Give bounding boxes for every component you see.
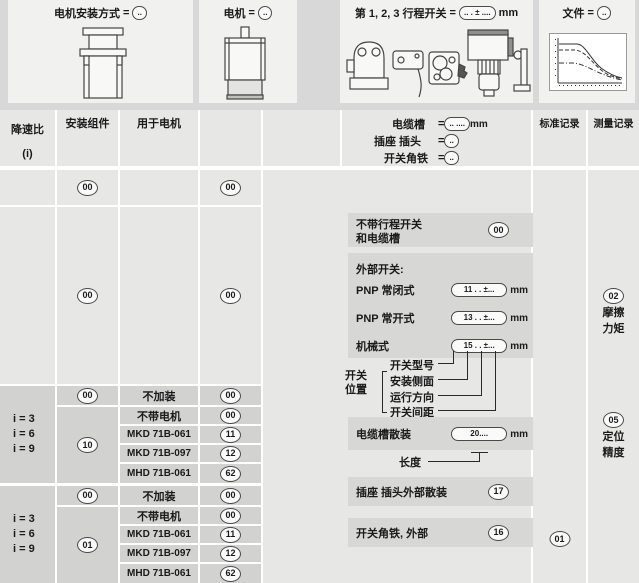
plug-bulk-label: 插座 插头外部散装 xyxy=(356,484,447,500)
code-badge: 00 xyxy=(77,288,98,304)
motor-icon xyxy=(217,26,273,100)
motor-mount-label: 电机安装方式 xyxy=(54,5,120,21)
angle-external-label: 开关角铁, 外部 xyxy=(356,525,428,541)
measure-item-friction: 02 摩擦 力矩 xyxy=(588,288,639,336)
panel-file: 文件 = .. xyxy=(539,0,635,103)
code-badge: 00 xyxy=(220,408,241,424)
code-badge: 01 xyxy=(77,537,98,553)
code-badge: 17 xyxy=(488,484,509,500)
table-row: 00 xyxy=(200,507,261,524)
header-mounting: 安装组件 xyxy=(57,110,118,166)
sensor-face-icon xyxy=(428,50,468,96)
callout-run-direction: 运行方向 xyxy=(390,389,434,405)
panel-motor: 电机 = .. xyxy=(199,0,297,103)
header-ratio-line1: 降速比 xyxy=(11,121,44,137)
code-badge: 62 xyxy=(220,566,241,582)
motor-label: 电机 xyxy=(224,5,246,21)
pnp-no-code-oval: 13 . . ±... xyxy=(451,311,507,325)
code-badge: 00 xyxy=(77,180,98,196)
option-plug-bulk: 插座 插头外部散装 17 xyxy=(348,477,533,506)
pnp-nc-row: PNP 常闭式 11 . . ±... mm xyxy=(356,282,528,298)
table-row: 11 xyxy=(200,426,261,443)
switch-angle-label: 开关角铁 xyxy=(342,150,438,166)
equals-sign: = xyxy=(123,7,129,19)
table-row: 不加装 xyxy=(120,486,198,505)
table-row: MKD 71B-061 xyxy=(120,426,198,443)
ratio-value: i = 3 xyxy=(13,513,35,526)
pnp-nc-unit: mm xyxy=(510,285,528,296)
motorcode-cell-rowA: 00 xyxy=(200,170,261,205)
motor-option: MHD 71B-061 xyxy=(127,568,191,579)
header-spacer-col xyxy=(263,110,340,166)
pnp-nc-label: PNP 常闭式 xyxy=(356,282,451,298)
measure-label-line: 精度 xyxy=(603,446,625,460)
motor-option: MKD 71B-061 xyxy=(127,529,191,540)
ratio-cell-section2: i = 3 i = 6 i = 9 xyxy=(0,486,55,583)
ratio-cell-rowB xyxy=(0,207,55,384)
motor-option: MKD 71B-061 xyxy=(127,429,191,440)
motor-option: MHD 71B-061 xyxy=(127,468,191,479)
table-row: 00 xyxy=(200,486,261,505)
header-accessories: 电缆槽 = .. .... mm 插座 插头 = .. 开关角铁 = .. xyxy=(342,110,531,166)
table-row: 00 xyxy=(200,407,261,424)
table-row: 00 xyxy=(200,386,261,405)
panel-travel-switches: 第 1, 2, 3 行程开关 = .. . ± .... mm xyxy=(340,0,533,103)
micro-switch-icon xyxy=(392,48,426,100)
ratio-value: i = 3 xyxy=(13,413,35,426)
file-label: 文件 xyxy=(563,5,585,21)
header-measure-record-label: 测量记录 xyxy=(594,115,634,130)
ratio-value: i = 6 xyxy=(13,528,35,541)
table-row: MHD 71B-061 xyxy=(120,564,198,583)
pnp-no-label: PNP 常开式 xyxy=(356,310,451,326)
header-mounting-label: 安装组件 xyxy=(66,115,110,131)
code-badge: 11 xyxy=(220,527,241,543)
header-plug-row: 插座 插头 = .. xyxy=(342,133,531,149)
cable-duct-unit: mm xyxy=(470,119,488,130)
option-no-switch: 不带行程开关 和电缆槽 00 xyxy=(348,213,533,247)
table-row: 62 xyxy=(200,564,261,583)
code-badge: 00 xyxy=(220,288,241,304)
code-badge: 12 xyxy=(220,546,241,562)
equals-sign: = xyxy=(450,7,456,19)
motor-option: MKD 71B-097 xyxy=(127,548,191,559)
header-ratio-line2: (i) xyxy=(22,148,32,160)
code-badge: 16 xyxy=(488,525,509,541)
table-row: 不带电机 xyxy=(120,507,198,524)
motor-option: 不带电机 xyxy=(137,508,181,524)
motor-option: 不带电机 xyxy=(137,408,181,424)
motor-mount-code-oval: .. xyxy=(132,6,146,20)
mounting-none-cell-section2: 00 xyxy=(57,486,118,505)
equals-sign: = xyxy=(249,7,255,19)
motor-code-oval: .. xyxy=(258,6,272,20)
table-row: MHD 71B-061 xyxy=(120,464,198,483)
motorcode-cell-rowB: 00 xyxy=(200,207,261,384)
cable-bulk-code-oval: 20.... xyxy=(451,427,507,441)
table-row: 11 xyxy=(200,526,261,543)
table-row: MKD 71B-097 xyxy=(120,545,198,562)
table-row: 不带电机 xyxy=(120,407,198,424)
external-switch-title: 外部开关: xyxy=(356,261,404,277)
ratio-cell-rowA xyxy=(0,170,55,205)
motor-label-row: 电机 = .. xyxy=(199,5,297,21)
angle-bracket-icon xyxy=(512,42,532,98)
motor-mount-icon xyxy=(72,26,134,100)
code-badge: 02 xyxy=(603,288,624,304)
ratio-value: i = 6 xyxy=(13,428,35,441)
ratio-cell-section1: i = 3 i = 6 i = 9 xyxy=(0,386,55,483)
motor-option: MKD 71B-097 xyxy=(127,448,191,459)
table-row: 不加装 xyxy=(120,386,198,405)
measure-label-line: 定位 xyxy=(603,430,625,444)
mounting-cell-section2: 01 xyxy=(57,507,118,583)
roller-limit-switch-icon xyxy=(346,36,392,98)
header-for-motor: 用于电机 xyxy=(120,110,198,166)
header-measure-record: 测量记录 xyxy=(588,110,639,166)
option-external-switches: 外部开关: PNP 常闭式 11 . . ±... mm PNP 常开式 13 … xyxy=(348,253,533,358)
cable-duct-code-oval: .. .... xyxy=(444,117,470,131)
plug-socket-label: 插座 插头 xyxy=(342,133,438,149)
code-badge: 11 xyxy=(220,427,241,443)
header-angle-row: 开关角铁 = .. xyxy=(342,150,531,166)
measure-record-col: 02 摩擦 力矩 05 定位 精度 xyxy=(588,170,639,583)
option-angle-external: 开关角铁, 外部 16 xyxy=(348,518,533,547)
cable-duct-label: 电缆槽 xyxy=(342,116,438,132)
code-badge: 62 xyxy=(220,466,241,482)
cable-bulk-label: 电缆槽散装 xyxy=(356,426,451,442)
header-standard-record-label: 标准记录 xyxy=(540,115,580,130)
mechanical-code-oval: 15 . . ±... xyxy=(451,339,507,353)
code-badge: 00 xyxy=(77,488,98,504)
code-badge: 00 xyxy=(220,488,241,504)
motor-mount-label-row: 电机安装方式 = .. xyxy=(8,5,193,21)
switch-position-label: 开关 位置 xyxy=(345,369,367,397)
measure-item-positioning: 05 定位 精度 xyxy=(588,412,639,460)
code-badge: 10 xyxy=(77,437,98,453)
table-row: 62 xyxy=(200,464,261,483)
file-label-row: 文件 = .. xyxy=(539,5,635,21)
mounting-cell-rowB: 00 xyxy=(57,207,118,384)
cable-bulk-row: 电缆槽散装 20.... mm xyxy=(356,426,528,442)
code-badge: 05 xyxy=(603,412,624,428)
mounting-cell-rowA: 00 xyxy=(57,170,118,205)
standard-record-col: 01 xyxy=(533,170,586,583)
code-badge: 00 xyxy=(220,508,241,524)
ratio-value: i = 9 xyxy=(13,443,35,456)
file-code-oval: .. xyxy=(597,6,611,20)
switch-position-line2: 位置 xyxy=(345,383,367,397)
ratio-value: i = 9 xyxy=(13,543,35,556)
table-row: MKD 71B-097 xyxy=(120,445,198,462)
document-curves-icon xyxy=(549,33,627,91)
mechanical-label: 机械式 xyxy=(356,338,451,354)
equals-sign: = xyxy=(588,7,594,19)
travel-switch-label: 第 1, 2, 3 行程开关 xyxy=(355,5,447,21)
table-row: 12 xyxy=(200,445,261,462)
code-badge: 01 xyxy=(549,531,570,547)
motor-cell-rowB xyxy=(120,207,198,384)
motor-cell-rowA xyxy=(120,170,198,205)
mounting-cell-section1: 10 xyxy=(57,407,118,483)
header-cable-row: 电缆槽 = .. .... mm xyxy=(342,116,531,132)
table-row: 12 xyxy=(200,545,261,562)
pnp-nc-code-oval: 11 . . ±... xyxy=(451,283,507,297)
callout-switch-type: 开关型号 xyxy=(390,357,434,373)
travel-switch-unit: mm xyxy=(499,7,519,19)
measure-label-line: 力矩 xyxy=(603,322,625,336)
plug-socket-code-oval: .. xyxy=(444,134,458,148)
header-code-col xyxy=(200,110,261,166)
callout-length: 长度 xyxy=(399,454,421,470)
switch-angle-code-oval: .. xyxy=(444,151,458,165)
switch-plug-unit-icon xyxy=(466,28,514,102)
mechanical-unit: mm xyxy=(510,341,528,352)
callout-mounting-side: 安装侧面 xyxy=(390,373,434,389)
motor-option: 不加装 xyxy=(143,488,176,504)
mounting-none-cell-section1: 00 xyxy=(57,386,118,405)
travel-switch-label-row: 第 1, 2, 3 行程开关 = .. . ± .... mm xyxy=(340,5,533,21)
code-badge: 00 xyxy=(488,222,509,238)
travel-switch-code-oval: .. . ± .... xyxy=(459,6,496,20)
pnp-no-unit: mm xyxy=(510,313,528,324)
mechanical-row: 机械式 15 . . ±... mm xyxy=(356,338,528,354)
header-ratio: 降速比 (i) xyxy=(0,110,55,166)
no-switch-line2: 和电缆槽 xyxy=(356,230,400,246)
option-cable-duct-bulk: 电缆槽散装 20.... mm xyxy=(348,417,533,450)
switch-position-line1: 开关 xyxy=(345,369,367,383)
measure-label-line: 摩擦 xyxy=(603,306,625,320)
header-standard-record: 标准记录 xyxy=(533,110,586,166)
header-for-motor-label: 用于电机 xyxy=(137,115,181,131)
code-badge: 00 xyxy=(220,388,241,404)
code-badge: 00 xyxy=(77,388,98,404)
code-badge: 00 xyxy=(220,180,241,196)
motor-option: 不加装 xyxy=(143,388,176,404)
ordering-schema-diagram: 电机安装方式 = .. 电机 = .. xyxy=(0,0,639,583)
cable-bulk-unit: mm xyxy=(510,429,528,440)
code-badge: 12 xyxy=(220,446,241,462)
pnp-no-row: PNP 常开式 13 . . ±... mm xyxy=(356,310,528,326)
panel-motor-mount: 电机安装方式 = .. xyxy=(8,0,193,103)
table-row: MKD 71B-061 xyxy=(120,526,198,543)
